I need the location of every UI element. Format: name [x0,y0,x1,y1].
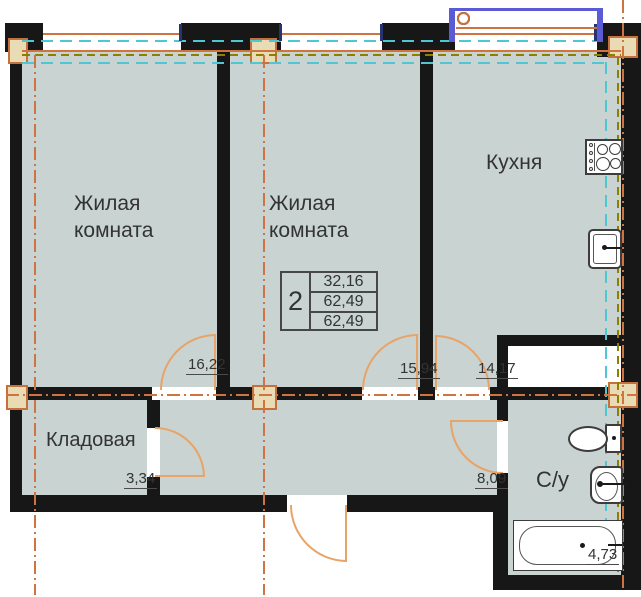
door-leaf [450,420,503,422]
axis-line [263,55,265,595]
room-label-kitchen: Кухня [486,149,542,176]
room-label-living1: Жилая комната [74,190,153,244]
wall-segment [10,40,22,512]
toilet-bowl-icon [568,426,608,452]
stamp-rooms-count: 2 [282,273,311,329]
stamp-overall-area: 62,49 [311,313,376,331]
kitchen-sink-faucet-line [606,247,622,249]
wall-segment [147,397,160,428]
window-end-tick [279,24,282,41]
window-frame-line [455,33,597,35]
insulation-line [22,54,621,56]
wall-segment [347,495,508,512]
window-frame-line [43,33,181,35]
basin-faucet-line [602,483,627,485]
room-label-bathroom: С/у [536,466,569,493]
wall-segment [420,45,433,397]
window-line [22,62,608,64]
wash-basin-icon [590,466,623,504]
axis-line [34,55,36,595]
window-end-tick [380,24,383,41]
floor-plan: Жилая комната Жилая комната Кухня Кладов… [0,0,641,597]
wall-segment [493,495,508,575]
window-frame-line [22,50,621,52]
bathtub-drain [580,543,585,548]
room-label-storage: Кладовая [46,427,136,454]
window-end-tick [179,24,182,41]
toilet-button [612,436,616,440]
entrance-door-arc [290,505,347,562]
balcony-post [449,10,455,42]
stove-icon [585,139,623,175]
balcony-post [597,10,603,42]
room-label-living2: Жилая комната [269,190,348,244]
stamp-total-area: 62,49 [311,293,376,313]
window-frame-line [281,33,382,35]
door-leaf [155,475,205,477]
balcony-railing-ornament [457,12,597,27]
wall-segment [217,45,230,397]
column [6,385,28,410]
wall-segment [493,575,641,590]
axis-line [622,0,624,592]
axis-line [6,394,638,396]
wall-segment [382,23,455,52]
balcony-floor-line [456,27,597,29]
window-line [22,40,597,42]
entrance-door-leaf [345,505,347,562]
stamp-living-area: 32,16 [311,273,376,293]
apartment-stamp: 2 32,16 62,49 62,49 [280,271,378,331]
wall-segment [621,40,641,590]
balcony-rail [449,8,603,11]
wall-segment [10,495,287,512]
